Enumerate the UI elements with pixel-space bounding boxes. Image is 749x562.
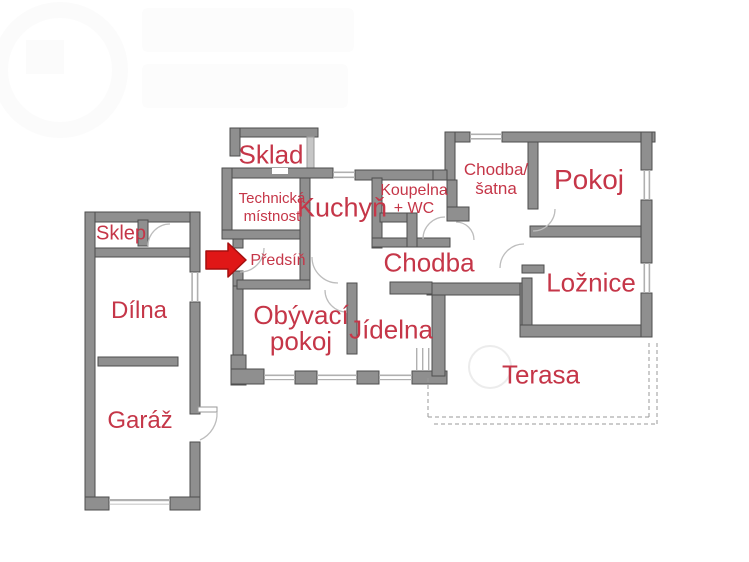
room-label-jidelna: Jídelna — [349, 315, 433, 346]
room-label-predsin: Předsíň — [250, 252, 305, 270]
room-label-sklad: Sklad — [238, 140, 303, 171]
room-label-chodba: Chodba — [383, 248, 474, 279]
room-label-chodba-satna-line1: Chodba/ — [464, 160, 528, 179]
room-label-garaz: Garáž — [107, 407, 172, 435]
room-label-obyvaci-line2: pokoj — [253, 328, 348, 354]
room-label-kuchyn: Kuchyň — [297, 193, 387, 224]
door-leaf — [198, 407, 217, 412]
room-label-koupelna-wc: Koupelna + WC — [380, 182, 448, 218]
room-label-obyvaci-line1: Obývací — [253, 302, 348, 328]
floor-plan: Sklad Technická místnost Kuchyň Koupelna… — [0, 0, 749, 562]
room-label-chodba-satna-line2: šatna — [464, 179, 528, 198]
left-building-walls — [85, 212, 200, 510]
floorplan-drawing — [0, 0, 749, 562]
room-label-obyvaci-pokoj: Obývací pokoj — [253, 302, 348, 354]
room-label-chodba-satna: Chodba/ šatna — [464, 160, 528, 198]
room-label-loznice: Ložnice — [546, 268, 636, 299]
room-label-technicka-line1: Technická — [239, 190, 306, 208]
room-label-sklep: Sklep — [96, 223, 146, 246]
room-label-dilna: Dílna — [111, 297, 167, 325]
room-label-koupelna-line2: + WC — [380, 200, 448, 218]
room-label-technicka-mistnost: Technická místnost — [239, 190, 306, 226]
room-label-technicka-line2: místnost — [239, 208, 306, 226]
room-label-koupelna-line1: Koupelna — [380, 182, 448, 200]
room-label-terasa: Terasa — [502, 360, 580, 391]
room-label-pokoj: Pokoj — [554, 164, 624, 196]
